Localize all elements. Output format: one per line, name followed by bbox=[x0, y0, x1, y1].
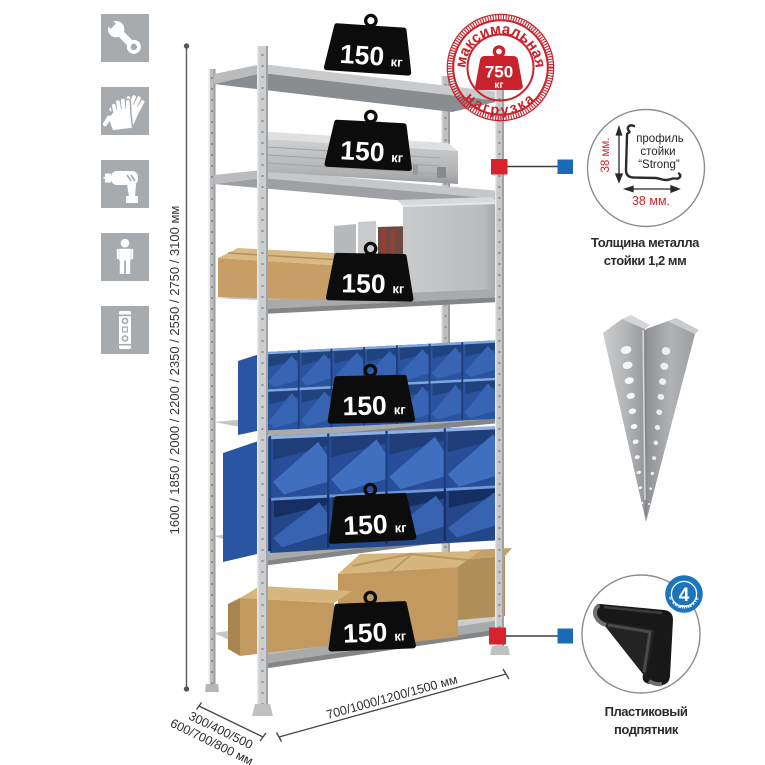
svg-text:Пластиковый: Пластиковый bbox=[605, 704, 688, 719]
svg-text:кг: кг bbox=[394, 520, 407, 536]
svg-text:150: 150 bbox=[340, 135, 386, 167]
svg-text:Толщина металла: Толщина металла bbox=[591, 235, 700, 250]
svg-text:стойки: стойки bbox=[640, 146, 675, 158]
svg-text:стойки 1,2 мм: стойки 1,2 мм bbox=[604, 253, 687, 268]
svg-text:кг: кг bbox=[392, 281, 405, 296]
svg-text:38 мм.: 38 мм. bbox=[600, 138, 612, 173]
svg-text:профиль: профиль bbox=[636, 133, 684, 145]
svg-text:“Strong”: “Strong” bbox=[638, 159, 680, 171]
svg-text:кг: кг bbox=[394, 628, 407, 643]
svg-text:150: 150 bbox=[341, 268, 386, 299]
svg-text:750: 750 bbox=[485, 63, 513, 82]
svg-text:кг: кг bbox=[494, 80, 503, 91]
svg-text:150: 150 bbox=[342, 617, 387, 649]
svg-text:кг: кг bbox=[394, 402, 407, 417]
svg-text:подпятник: подпятник bbox=[614, 722, 679, 737]
svg-text:150: 150 bbox=[343, 509, 389, 541]
svg-text:38 мм.: 38 мм. bbox=[632, 194, 670, 208]
svg-text:кг: кг bbox=[391, 150, 404, 166]
svg-text:150: 150 bbox=[342, 390, 387, 421]
svg-text:1600 / 1850 / 2000 / 2200 / 23: 1600 / 1850 / 2000 / 2200 / 2350 / 2550 … bbox=[167, 206, 182, 535]
svg-text:150: 150 bbox=[339, 39, 385, 72]
svg-text:кг: кг bbox=[390, 54, 403, 70]
